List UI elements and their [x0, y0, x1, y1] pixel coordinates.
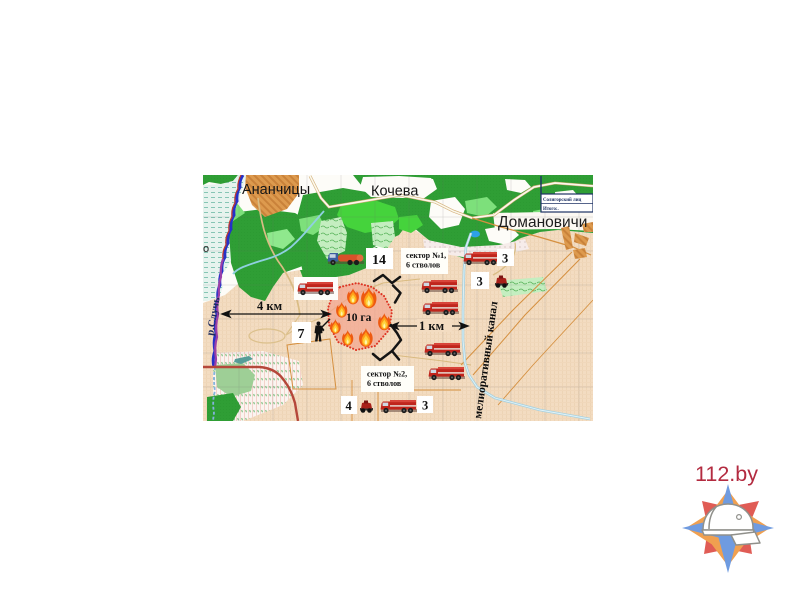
svg-text:4 км: 4 км [257, 299, 283, 313]
svg-text:сектор №1,: сектор №1, [406, 251, 446, 260]
svg-text:3: 3 [502, 252, 508, 266]
svg-text:сектор №2,: сектор №2, [367, 370, 407, 379]
svg-text:3: 3 [422, 399, 428, 413]
svg-text:Солигорский лиц: Солигорский лиц [543, 198, 581, 203]
svg-text:112.by: 112.by [695, 462, 758, 486]
svg-text:7: 7 [298, 327, 305, 342]
svg-text:Итого:.: Итого:. [543, 207, 559, 212]
svg-text:10 га: 10 га [346, 312, 372, 324]
svg-text:Домановичи: Домановичи [498, 214, 587, 231]
svg-text:6 стволов: 6 стволов [367, 379, 402, 388]
svg-text:3: 3 [477, 275, 483, 289]
svg-text:1 км: 1 км [419, 319, 445, 333]
svg-text:о: о [203, 243, 209, 255]
svg-text:Ананчицы: Ананчицы [242, 182, 310, 198]
svg-text:4: 4 [346, 399, 353, 413]
svg-text:14: 14 [372, 253, 386, 268]
svg-text:Кочева: Кочева [371, 184, 419, 200]
svg-text:6 стволов: 6 стволов [406, 261, 441, 270]
